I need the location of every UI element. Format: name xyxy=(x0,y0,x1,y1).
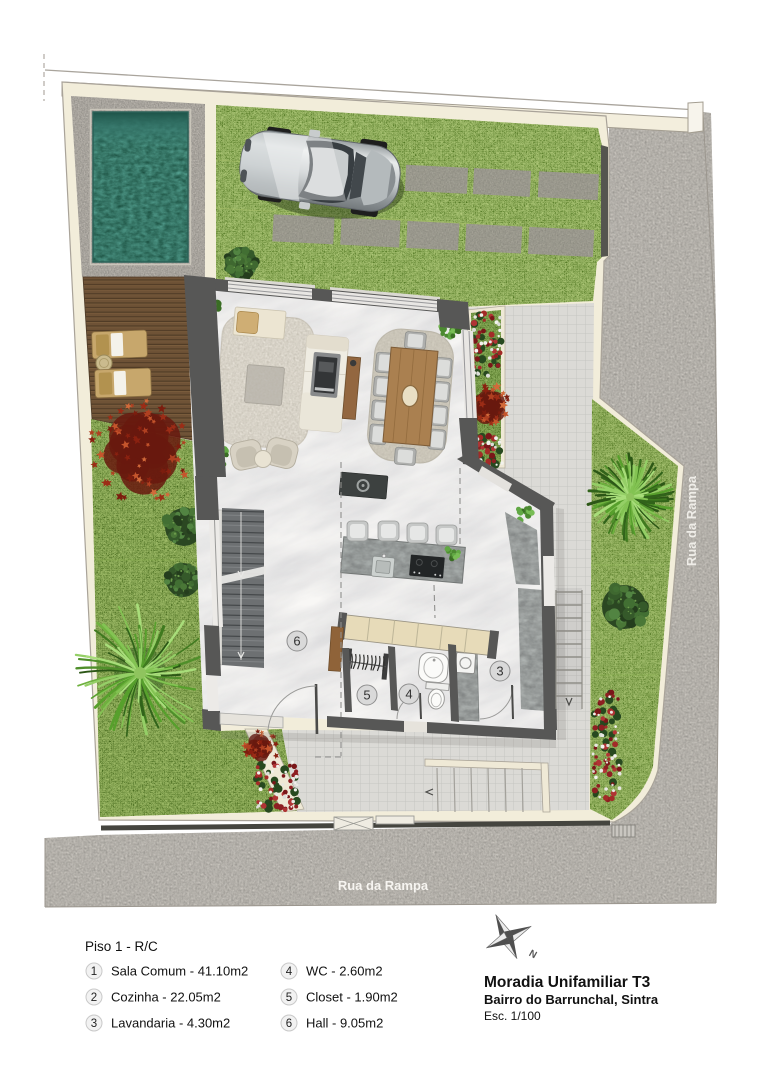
svg-text:4: 4 xyxy=(286,966,293,978)
svg-text:Hall - 9.05m2: Hall - 9.05m2 xyxy=(306,1016,383,1031)
svg-text:Piso 1 - R/C: Piso 1 - R/C xyxy=(85,939,158,954)
svg-text:Rua da Rampa: Rua da Rampa xyxy=(338,878,429,893)
svg-text:5: 5 xyxy=(363,688,370,703)
svg-text:Bairro do Barrunchal, Sintra: Bairro do Barrunchal, Sintra xyxy=(484,992,659,1007)
svg-text:6: 6 xyxy=(286,1018,292,1030)
svg-text:1: 1 xyxy=(91,966,97,978)
svg-text:4: 4 xyxy=(405,687,412,702)
svg-text:Esc. 1/100: Esc. 1/100 xyxy=(484,1009,541,1023)
svg-text:Moradia Unifamiliar T3: Moradia Unifamiliar T3 xyxy=(484,974,651,991)
svg-text:2: 2 xyxy=(91,992,97,1004)
svg-text:6: 6 xyxy=(293,634,300,649)
svg-text:Sala Comum - 41.10m2: Sala Comum - 41.10m2 xyxy=(111,964,248,979)
svg-text:5: 5 xyxy=(286,992,292,1004)
svg-text:Closet - 1.90m2: Closet - 1.90m2 xyxy=(306,990,398,1005)
svg-text:3: 3 xyxy=(496,664,503,679)
svg-text:Cozinha - 22.05m2: Cozinha - 22.05m2 xyxy=(111,990,221,1005)
svg-text:Rua da Rampa: Rua da Rampa xyxy=(684,475,699,566)
svg-text:WC - 2.60m2: WC - 2.60m2 xyxy=(306,964,383,979)
svg-text:3: 3 xyxy=(91,1018,97,1030)
svg-text:Lavandaria - 4.30m2: Lavandaria - 4.30m2 xyxy=(111,1016,230,1031)
